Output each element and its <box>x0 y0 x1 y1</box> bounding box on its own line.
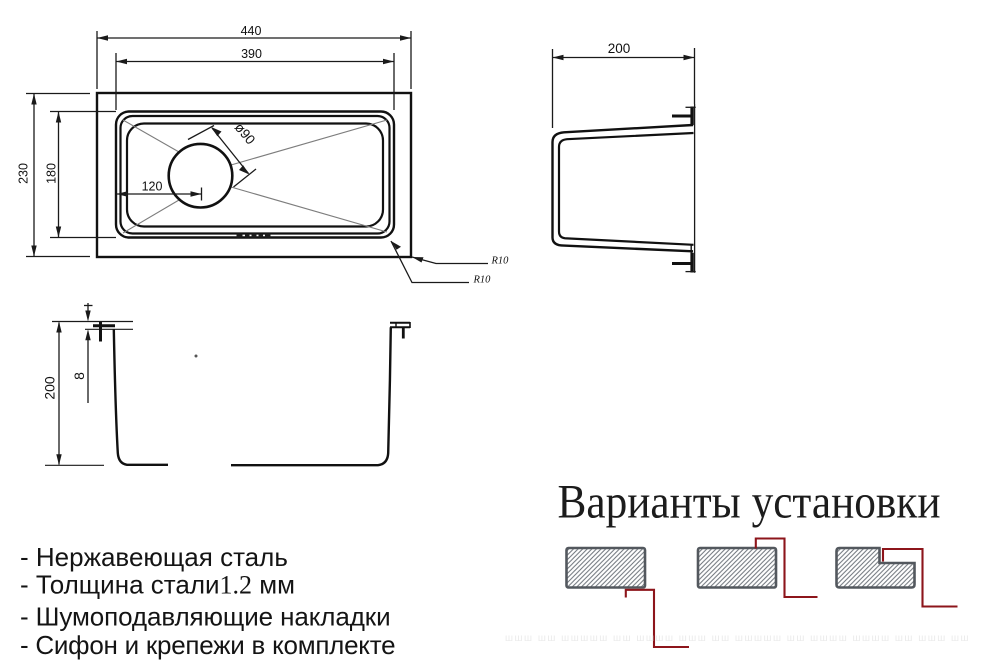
svg-text:8: 8 <box>71 372 87 380</box>
svg-text:шшш шш шшшшш шш шшшш шшш шш шш: шшш шш шшшшш шш шшшш шшш шш шшшшш шш шшш… <box>505 633 970 644</box>
svg-text:200: 200 <box>42 376 58 400</box>
svg-text:- Нержавеющая сталь: - Нержавеющая сталь <box>20 542 288 572</box>
svg-text:- Шумоподавляющие накладки: - Шумоподавляющие накладки <box>20 602 391 632</box>
svg-text:180: 180 <box>45 163 59 184</box>
svg-text:R10: R10 <box>491 256 510 267</box>
svg-text:R10: R10 <box>473 275 492 286</box>
svg-text:440: 440 <box>241 24 262 38</box>
svg-text:- Сифон и крепежи в комплекте: - Сифон и крепежи в комплекте <box>20 630 395 660</box>
svg-text:230: 230 <box>17 163 31 184</box>
svg-text:120: 120 <box>142 180 163 194</box>
svg-text:390: 390 <box>241 47 262 61</box>
svg-text:200: 200 <box>608 41 631 56</box>
svg-text:- Толщина стали1.2 мм: - Толщина стали1.2 мм <box>20 570 295 600</box>
svg-text:Варианты установки: Варианты установки <box>558 476 941 529</box>
